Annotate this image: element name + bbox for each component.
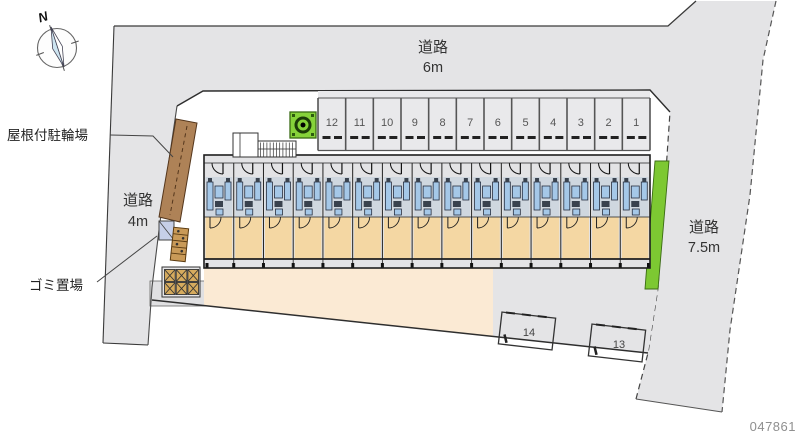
wheel-stop-dash: [611, 136, 619, 139]
unit-fixture-dark: [494, 178, 498, 182]
unit-fixture-dark: [393, 201, 401, 207]
wheel-stop-dash: [555, 136, 563, 139]
unit-fixture-dark: [315, 178, 319, 182]
unit-bathtub: [296, 182, 302, 210]
tree-icon-corner: [292, 133, 295, 136]
unit-fixture-dark: [453, 201, 461, 207]
unit-fixture-dark: [375, 178, 379, 182]
unit-bathtub: [415, 182, 421, 210]
road-right-width: 7.5m: [688, 240, 720, 256]
unit-fixture-dark: [483, 201, 491, 207]
bicycle-rack-body: [170, 227, 188, 261]
unit-kitchen: [641, 182, 647, 200]
unit-kitchen: [284, 182, 290, 200]
unit: [353, 163, 383, 259]
unit-fixture-dark: [215, 201, 223, 207]
unit-sink: [453, 186, 461, 198]
unit-fixture-dark: [553, 178, 557, 182]
stall-number: 6: [495, 117, 501, 129]
unit-fixture-dark: [285, 178, 289, 182]
unit-sink: [483, 186, 491, 198]
unit-fixture-dark: [602, 201, 610, 207]
unit-fixture-dark: [535, 178, 539, 182]
unit-toilet: [275, 209, 282, 215]
wheel-stop-dash: [323, 136, 331, 139]
unit-toilet: [454, 209, 461, 215]
unit-fixture-dark: [297, 178, 301, 182]
site-plan-svg: 121110987654321: [0, 0, 800, 439]
unit: [204, 163, 234, 259]
wheel-stop-dash: [406, 136, 414, 139]
tree-icon-corner: [292, 114, 295, 117]
unit-sink: [215, 186, 223, 198]
unit-toilet: [424, 209, 431, 215]
unit: [382, 163, 412, 259]
unit-fixture-dark: [327, 178, 331, 182]
wheel-stop-dash: [362, 136, 370, 139]
road-top-width: 6m: [423, 60, 443, 76]
unit-fixture-dark: [226, 178, 230, 182]
unit-fixture-dark: [572, 201, 580, 207]
unit-fixture-dark: [357, 178, 361, 182]
unit: [561, 163, 591, 259]
garbage-area-label: ゴミ置場: [29, 277, 83, 293]
wheel-stop-dash: [544, 136, 552, 139]
unit-toilet: [246, 209, 253, 215]
unit-fixture-dark: [464, 178, 468, 182]
unit-fixture-dark: [595, 178, 599, 182]
site-plan: 121110987654321: [0, 0, 800, 439]
unit-toilet: [573, 209, 580, 215]
unit-bathtub: [326, 182, 332, 210]
wheel-stop-dash: [489, 136, 497, 139]
unit-toilet: [365, 209, 372, 215]
unit-fixture-dark: [404, 178, 408, 182]
unit-fixture-dark: [624, 178, 628, 182]
unit-fixture-dark: [345, 178, 349, 182]
unit-bathtub: [445, 182, 451, 210]
unit-fixture-dark: [364, 201, 372, 207]
entrance-stairs: [233, 133, 296, 157]
unit-bathtub: [207, 182, 213, 210]
south-stall-number: 13: [613, 339, 625, 351]
wheel-stop-dash: [472, 136, 480, 139]
unit-fixture-dark: [523, 178, 527, 182]
wheel-stop-dash: [599, 136, 607, 139]
compass: N: [36, 8, 79, 71]
garbage-box: [162, 267, 200, 297]
wheel-stop-dash: [461, 136, 469, 139]
unit-sink: [423, 186, 431, 198]
building: [204, 155, 650, 268]
unit-sink: [572, 186, 580, 198]
bicycle-rack: [170, 227, 188, 261]
stall-number: 2: [605, 117, 611, 129]
unit-bathtub: [564, 182, 570, 210]
tree-icon-center: [301, 123, 306, 128]
unit-fixture-dark: [613, 178, 617, 182]
compass-north-label: N: [36, 8, 50, 25]
unit-fixture-dark: [512, 201, 520, 207]
unit-fixture-dark: [304, 201, 312, 207]
unit: [234, 163, 264, 259]
unit-fixture-dark: [416, 178, 420, 182]
wheel-stop-dash: [350, 136, 358, 139]
unit-fixture-dark: [642, 178, 646, 182]
unit-kitchen: [582, 182, 588, 200]
wheel-stop-dash: [417, 136, 425, 139]
unit-fixture-dark: [274, 201, 282, 207]
unit: [323, 163, 353, 259]
unit-fixture-dark: [423, 201, 431, 207]
unit: [412, 163, 442, 259]
unit-bathtub: [237, 182, 243, 210]
unit-fixture-dark: [583, 178, 587, 182]
unit-fixture-dark: [542, 201, 550, 207]
unit-fixture-dark: [256, 178, 260, 182]
wheel-stop-dash: [445, 136, 453, 139]
unit-sink: [364, 186, 372, 198]
unit-kitchen: [225, 182, 231, 200]
unit-sink: [245, 186, 253, 198]
unit-fixture-dark: [446, 178, 450, 182]
unit-toilet: [216, 209, 223, 215]
unit-toilet: [543, 209, 550, 215]
wheel-stop-dash: [500, 136, 508, 139]
plan-number: 047861: [750, 419, 796, 434]
tree-icon-corner: [311, 133, 314, 136]
wheel-stop-dash: [378, 136, 386, 139]
unit-sink: [512, 186, 520, 198]
unit-fixture-dark: [434, 178, 438, 182]
wheel-stop-dash: [528, 136, 536, 139]
tree-icon-corner: [311, 114, 314, 117]
unit-sink: [334, 186, 342, 198]
unit-bathtub: [266, 182, 272, 210]
stall-number: 11: [354, 117, 365, 129]
unit: [263, 163, 293, 259]
unit: [620, 163, 650, 259]
wheel-stop-dash: [334, 136, 342, 139]
bicycle-parking-label: 屋根付駐輪場: [7, 127, 88, 143]
wheel-stop-dash: [638, 136, 646, 139]
unit-fixture-dark: [238, 178, 242, 182]
unit-sink: [602, 186, 610, 198]
unit-fixture-dark: [386, 178, 390, 182]
wheel-stop-dash: [516, 136, 524, 139]
unit-fixture-dark: [565, 178, 569, 182]
stall-number: 4: [550, 117, 556, 129]
ground-gray: [493, 268, 659, 353]
unit: [293, 163, 323, 259]
unit-kitchen: [374, 182, 380, 200]
road-top-boundary: [114, 1, 696, 26]
stall-number: 5: [522, 117, 528, 129]
unit-bathtub: [475, 182, 481, 210]
unit-bathtub: [504, 182, 510, 210]
stall-number: 8: [439, 117, 445, 129]
stall-number: 10: [381, 117, 393, 129]
wheel-stop-dash: [389, 136, 397, 139]
unit-kitchen: [255, 182, 261, 200]
unit-toilet: [305, 209, 312, 215]
stall-number: 3: [578, 117, 584, 129]
unit: [531, 163, 561, 259]
unit-toilet: [484, 209, 491, 215]
wheel-stop-dash: [572, 136, 580, 139]
unit-bathtub: [594, 182, 600, 210]
unit-fixture-dark: [476, 178, 480, 182]
parking-row-top: 121110987654321: [318, 91, 650, 151]
unit-sink: [631, 186, 639, 198]
unit-kitchen: [433, 182, 439, 200]
unit-fixture-dark: [505, 178, 509, 182]
road-top-name: 道路: [418, 39, 448, 56]
unit-bathtub: [623, 182, 629, 210]
stall-number: 9: [412, 117, 418, 129]
unit-kitchen: [552, 182, 558, 200]
unit-kitchen: [403, 182, 409, 200]
unit-fixture-dark: [245, 201, 253, 207]
unit-toilet: [632, 209, 639, 215]
road-left-width: 4m: [128, 214, 148, 230]
unit-fixture-dark: [208, 178, 212, 182]
unit-kitchen: [493, 182, 499, 200]
wheel-stop-dash: [627, 136, 635, 139]
unit-sink: [274, 186, 282, 198]
stall-number: 12: [326, 117, 338, 129]
wheel-stop-dash: [433, 136, 441, 139]
unit-bathtub: [356, 182, 362, 210]
unit: [591, 163, 621, 259]
south-stall-number: 14: [523, 327, 535, 339]
tree-icon: [290, 112, 316, 138]
unit: [442, 163, 472, 259]
site-ground: [152, 268, 659, 353]
unit-toilet: [394, 209, 401, 215]
entrance-box: [233, 133, 258, 157]
unit-bathtub: [385, 182, 391, 210]
stall-number: 7: [467, 117, 473, 129]
unit-fixture-dark: [334, 201, 342, 207]
unit-kitchen: [344, 182, 350, 200]
unit-toilet: [335, 209, 342, 215]
road-left-name: 道路: [123, 192, 153, 209]
unit-kitchen: [612, 182, 618, 200]
unit-kitchen: [463, 182, 469, 200]
unit: [472, 163, 502, 259]
wheel-stop-dash: [583, 136, 591, 139]
road-right-name: 道路: [689, 219, 719, 236]
stall-number: 1: [633, 117, 639, 129]
unit-toilet: [603, 209, 610, 215]
unit-kitchen: [314, 182, 320, 200]
unit-sink: [542, 186, 550, 198]
unit-toilet: [513, 209, 520, 215]
ground-peach: [204, 268, 493, 337]
unit-fixture-dark: [267, 178, 271, 182]
unit-sink: [304, 186, 312, 198]
unit-sink: [393, 186, 401, 198]
unit-fixture-dark: [631, 201, 639, 207]
unit: [501, 163, 531, 259]
unit-kitchen: [522, 182, 528, 200]
unit-bathtub: [534, 182, 540, 210]
